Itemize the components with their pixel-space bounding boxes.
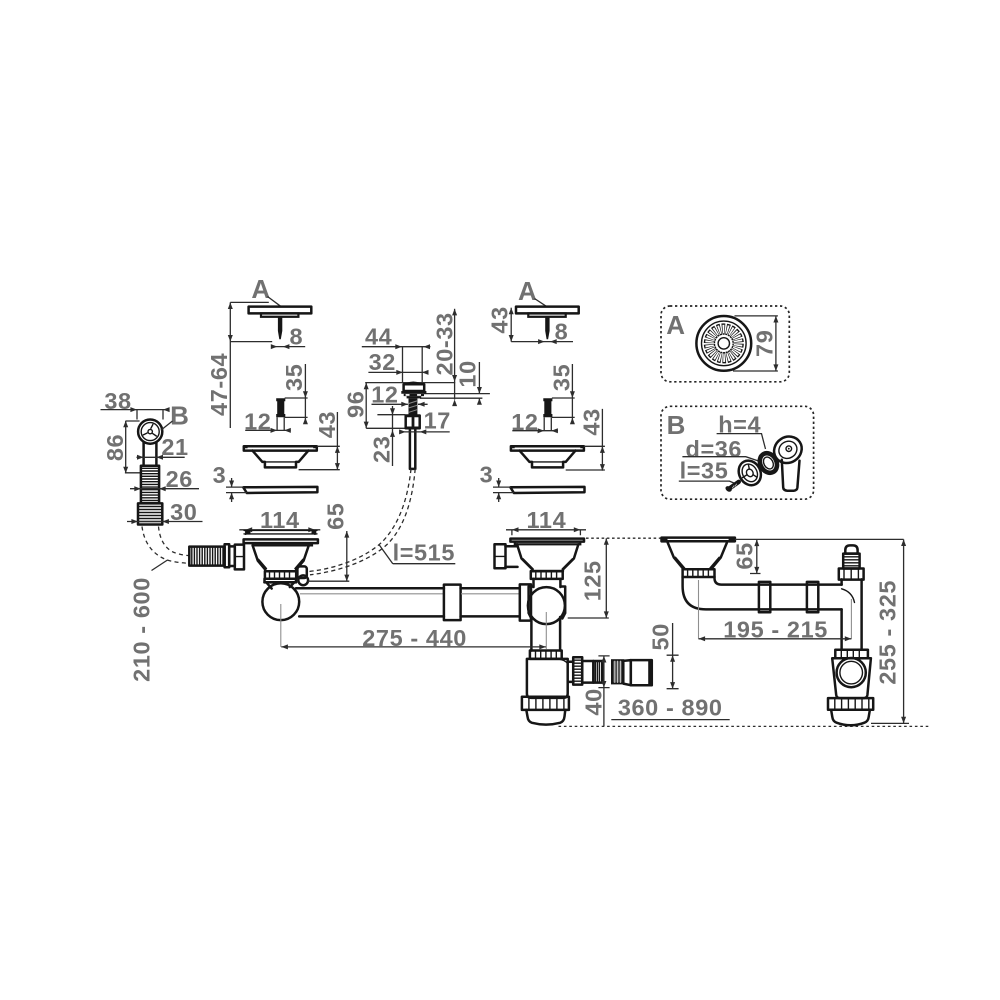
svg-text:l=35: l=35 bbox=[680, 458, 729, 484]
svg-text:79: 79 bbox=[751, 330, 777, 357]
svg-text:44: 44 bbox=[365, 324, 392, 350]
svg-text:43: 43 bbox=[579, 408, 605, 435]
svg-text:40: 40 bbox=[580, 688, 606, 715]
svg-text:l=515: l=515 bbox=[393, 539, 455, 565]
svg-text:114: 114 bbox=[260, 507, 300, 533]
svg-text:38: 38 bbox=[104, 388, 131, 414]
svg-text:65: 65 bbox=[732, 542, 758, 569]
svg-text:86: 86 bbox=[102, 434, 128, 461]
svg-text:96: 96 bbox=[342, 391, 368, 418]
svg-text:26: 26 bbox=[166, 466, 193, 492]
svg-text:B: B bbox=[170, 401, 189, 431]
svg-text:12: 12 bbox=[371, 382, 398, 408]
svg-text:23: 23 bbox=[369, 436, 395, 463]
svg-text:A: A bbox=[666, 310, 685, 340]
svg-text:125: 125 bbox=[580, 560, 606, 601]
svg-text:12: 12 bbox=[244, 409, 271, 435]
svg-text:195 - 215: 195 - 215 bbox=[723, 616, 828, 642]
svg-text:21: 21 bbox=[161, 434, 188, 460]
svg-text:8: 8 bbox=[289, 324, 303, 350]
svg-text:A: A bbox=[251, 274, 270, 304]
svg-text:17: 17 bbox=[424, 408, 451, 434]
svg-text:210 - 600: 210 - 600 bbox=[128, 577, 154, 682]
svg-text:A: A bbox=[518, 276, 537, 306]
svg-text:360 - 890: 360 - 890 bbox=[618, 694, 723, 720]
svg-text:35: 35 bbox=[548, 364, 574, 391]
svg-text:35: 35 bbox=[281, 364, 307, 391]
svg-text:50: 50 bbox=[647, 623, 673, 650]
svg-text:3: 3 bbox=[213, 462, 227, 488]
svg-text:30: 30 bbox=[170, 499, 197, 525]
svg-text:12: 12 bbox=[511, 409, 538, 435]
svg-text:47-64: 47-64 bbox=[206, 353, 232, 416]
svg-text:255 - 325: 255 - 325 bbox=[875, 580, 901, 685]
svg-text:43: 43 bbox=[314, 411, 340, 438]
svg-text:114: 114 bbox=[527, 507, 567, 533]
svg-text:10: 10 bbox=[454, 360, 480, 387]
svg-text:B: B bbox=[667, 410, 686, 440]
svg-text:43: 43 bbox=[486, 306, 512, 333]
svg-text:275 - 440: 275 - 440 bbox=[362, 625, 467, 651]
svg-text:65: 65 bbox=[322, 503, 348, 530]
svg-text:8: 8 bbox=[555, 319, 569, 345]
svg-text:3: 3 bbox=[480, 461, 494, 487]
svg-text:32: 32 bbox=[369, 349, 396, 375]
